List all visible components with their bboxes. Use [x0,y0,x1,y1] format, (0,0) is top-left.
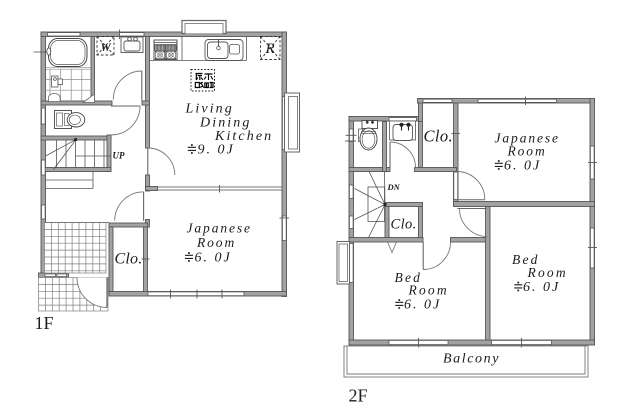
svg-text:W: W [101,42,112,54]
svg-text:DN: DN [387,182,401,192]
svg-text:Japanese: Japanese [187,221,252,236]
svg-text:Room: Room [408,283,449,298]
svg-text:Room: Room [527,265,568,280]
svg-text:Room: Room [507,144,547,159]
svg-text:1F: 1F [35,313,54,333]
svg-text:2F: 2F [349,385,368,405]
svg-text:9. 0J: 9. 0J [198,143,235,158]
svg-text:Room: Room [196,235,236,250]
svg-text:6. 0J: 6. 0J [195,251,232,266]
svg-text:6. 0J: 6. 0J [504,159,541,174]
svg-text:6. 0J: 6. 0J [404,298,441,313]
svg-text:Clo.: Clo. [424,127,454,146]
svg-text:UP: UP [113,151,125,161]
svg-text:Clo.: Clo. [115,251,143,268]
svg-text:6. 0J: 6. 0J [523,280,560,295]
svg-text:R: R [265,41,275,57]
svg-text:Clo.: Clo. [391,217,417,233]
svg-text:Balcony: Balcony [443,352,500,367]
svg-text:Living: Living [185,102,234,117]
